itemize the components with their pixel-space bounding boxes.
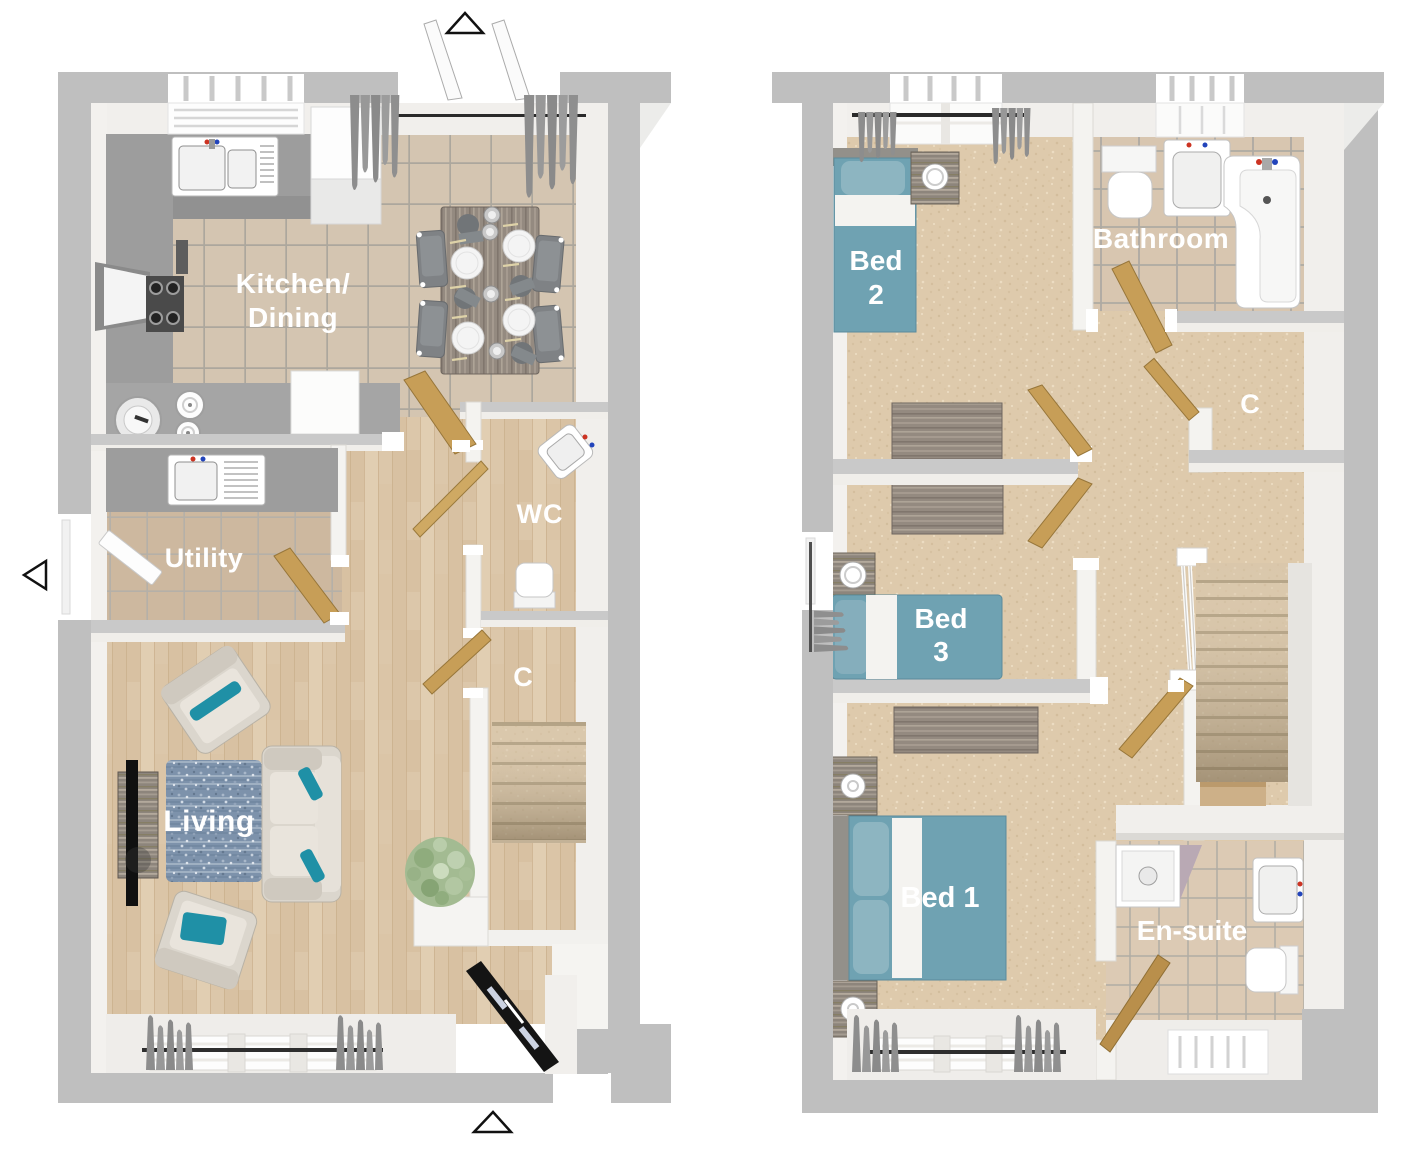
svg-text:Bathroom: Bathroom [1093, 223, 1229, 254]
svg-text:Kitchen/: Kitchen/ [236, 268, 350, 299]
svg-text:C: C [513, 662, 533, 692]
svg-text:Living: Living [163, 805, 254, 838]
svg-text:C: C [1240, 389, 1260, 419]
svg-text:Bed 1: Bed 1 [901, 882, 980, 914]
svg-text:2: 2 [868, 279, 884, 310]
svg-text:Bed: Bed [850, 245, 903, 276]
svg-text:Dining: Dining [248, 302, 338, 333]
svg-text:Utility: Utility [165, 543, 244, 573]
svg-text:WC: WC [517, 499, 564, 529]
svg-text:3: 3 [933, 636, 949, 667]
svg-text:Bed: Bed [915, 603, 968, 634]
svg-text:En-suite: En-suite [1137, 915, 1247, 946]
